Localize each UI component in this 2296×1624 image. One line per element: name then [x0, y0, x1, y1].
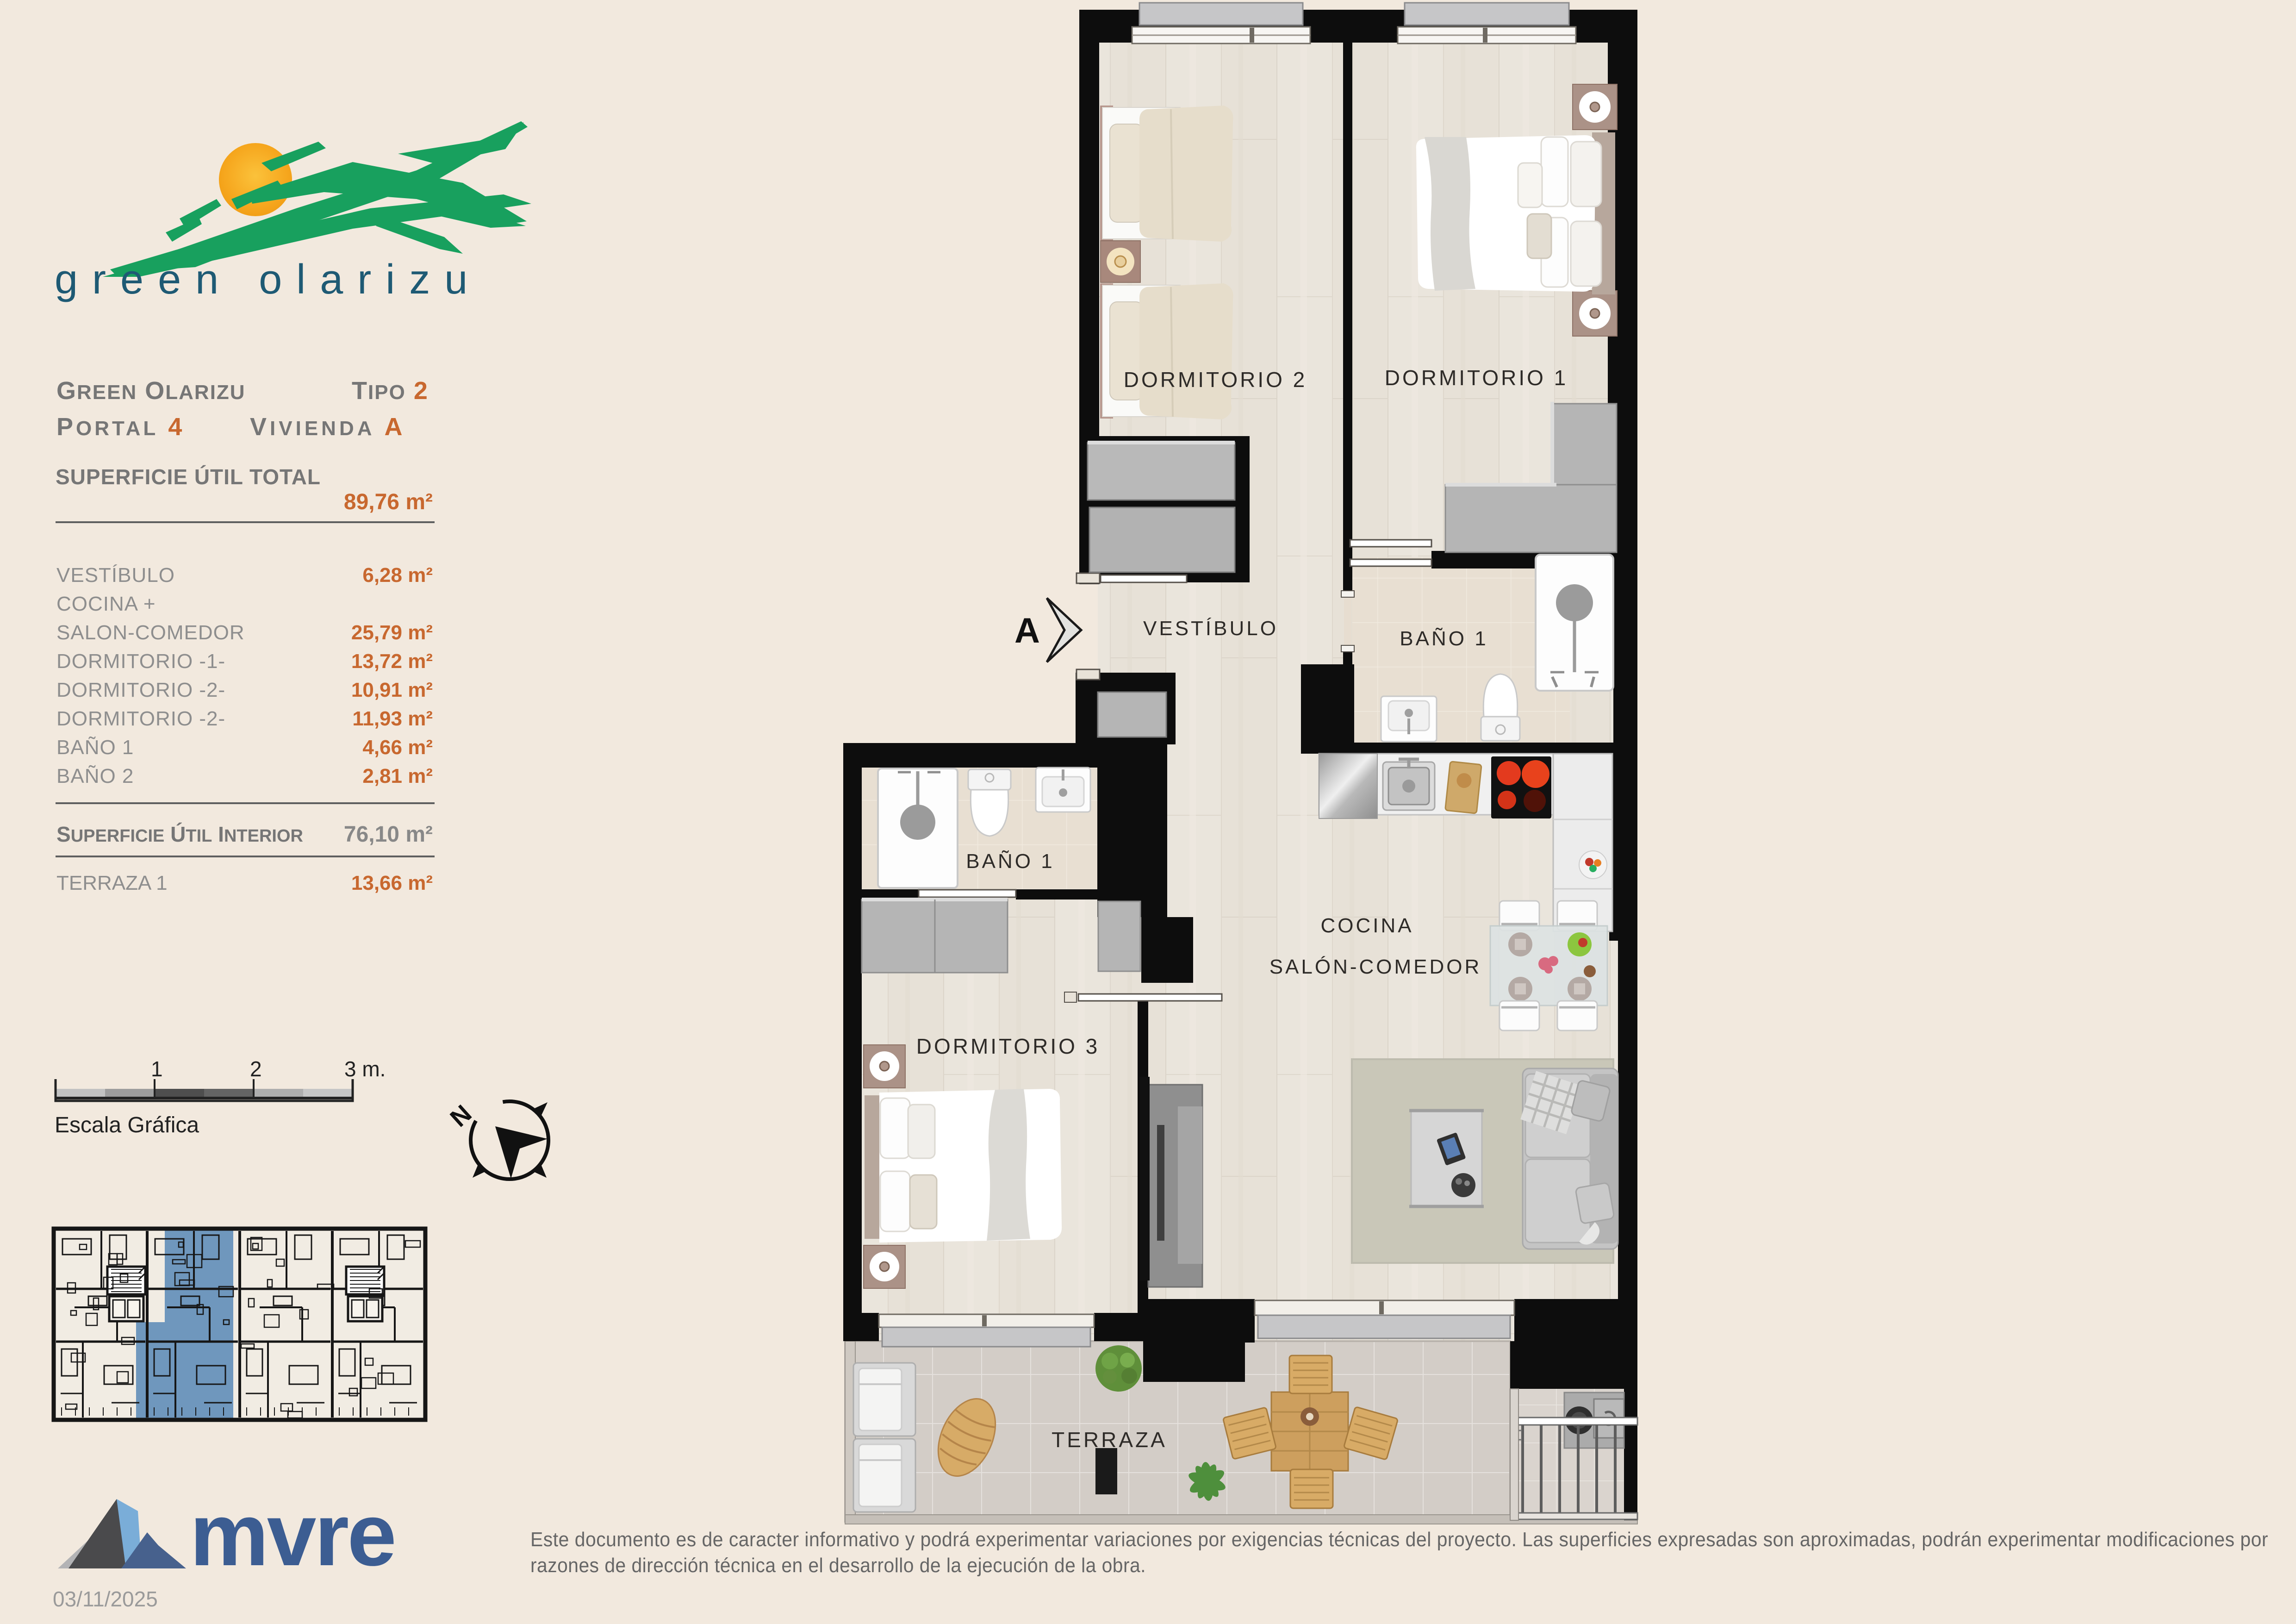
svg-text:25,79 m²: 25,79 m²	[351, 621, 433, 644]
svg-text:76,10 m²: 76,10 m²	[344, 822, 433, 847]
svg-text:SUPERFICIE ÚTIL TOTAL: SUPERFICIE ÚTIL TOTAL	[56, 465, 321, 489]
svg-text:DORMITORIO 3: DORMITORIO 3	[916, 1034, 1100, 1058]
svg-text:BAÑO 1: BAÑO 1	[1400, 627, 1488, 650]
svg-text:11,93 m²: 11,93 m²	[352, 707, 433, 730]
svg-text:VESTÍBULO: VESTÍBULO	[1143, 617, 1278, 640]
svg-text:BAÑO 1: BAÑO 1	[966, 849, 1054, 873]
svg-text:PORTAL 4: PORTAL 4	[56, 413, 185, 441]
svg-text:6,28 m²: 6,28 m²	[362, 564, 433, 587]
svg-text:Este documento es de caracter: Este documento es de caracter informativ…	[530, 1528, 2268, 1551]
svg-text:GREEN OLARIZU: GREEN OLARIZU	[56, 377, 246, 405]
svg-text:13,66 m²: 13,66 m²	[351, 872, 433, 894]
svg-text:SALÓN-COMEDOR: SALÓN-COMEDOR	[1269, 956, 1482, 978]
svg-text:Escala Gráfica: Escala Gráfica	[55, 1113, 199, 1137]
svg-text:mvre: mvre	[190, 1485, 395, 1584]
svg-text:03/11/2025: 03/11/2025	[53, 1587, 158, 1611]
svg-text:SUPERFICIE ÚTIL INTERIOR: SUPERFICIE ÚTIL INTERIOR	[56, 822, 303, 846]
svg-text:SALON-COMEDOR: SALON-COMEDOR	[56, 621, 245, 644]
svg-text:COCINA +: COCINA +	[56, 593, 156, 615]
svg-text:DORMITORIO 2: DORMITORIO 2	[1124, 368, 1307, 392]
svg-text:TIPO 2: TIPO 2	[352, 377, 429, 405]
svg-text:TERRAZA 1: TERRAZA 1	[56, 872, 168, 894]
svg-text:13,72 m²: 13,72 m²	[351, 650, 433, 673]
svg-text:2: 2	[250, 1057, 262, 1081]
svg-text:3 m.: 3 m.	[344, 1057, 386, 1081]
svg-text:VESTÍBULO: VESTÍBULO	[56, 564, 175, 587]
svg-text:BAÑO 1: BAÑO 1	[56, 736, 134, 759]
svg-text:green olarizu: green olarizu	[55, 256, 482, 303]
svg-text:DORMITORIO -1-: DORMITORIO -1-	[56, 650, 225, 673]
svg-text:razones de dirección técnica e: razones de dirección técnica en el desar…	[530, 1554, 1146, 1577]
svg-text:DORMITORIO -2-: DORMITORIO -2-	[56, 679, 225, 701]
svg-text:BAÑO 2: BAÑO 2	[56, 764, 134, 787]
svg-text:A: A	[1014, 611, 1040, 650]
svg-text:10,91 m²: 10,91 m²	[351, 679, 433, 701]
svg-text:DORMITORIO 1: DORMITORIO 1	[1385, 366, 1568, 390]
svg-text:VIVIENDA A: VIVIENDA A	[250, 413, 406, 441]
svg-text:DORMITORIO -2-: DORMITORIO -2-	[56, 707, 225, 730]
svg-text:89,76 m²: 89,76 m²	[344, 490, 433, 514]
svg-text:2,81 m²: 2,81 m²	[362, 765, 433, 787]
svg-text:4,66 m²: 4,66 m²	[362, 736, 433, 759]
svg-text:TERRAZA: TERRAZA	[1052, 1428, 1167, 1452]
svg-text:1: 1	[151, 1057, 163, 1081]
svg-text:COCINA: COCINA	[1320, 914, 1413, 937]
